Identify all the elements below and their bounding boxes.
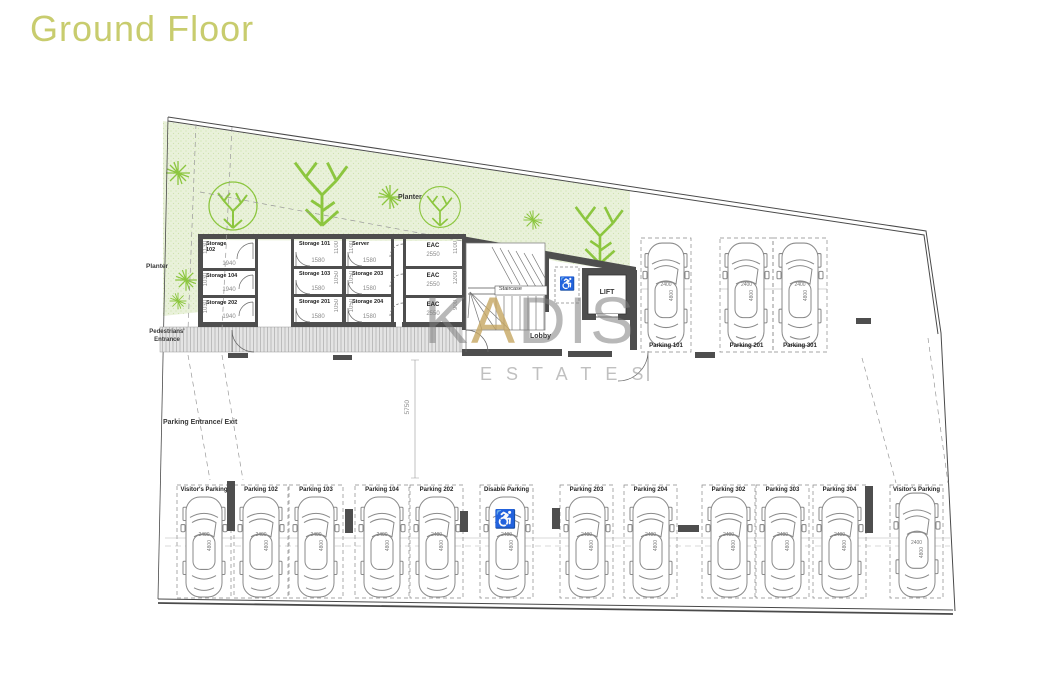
- planter-top-label: Planter: [398, 194, 422, 201]
- stall-label: Disable Parking: [480, 487, 533, 493]
- room-storage-203: Storage 203 1580 1050: [349, 270, 390, 293]
- room-name: EAC: [407, 270, 459, 280]
- stall-width-dim: 2400: [624, 532, 677, 538]
- wheelchair-icon: ♿: [559, 276, 575, 292]
- wheelchair-icon: ♿: [494, 509, 516, 530]
- room-storage-202: Storage 202 1940 1030: [203, 299, 255, 321]
- pedestrian-walkway: [160, 327, 462, 352]
- room-width-dim: 2550: [407, 252, 459, 258]
- stall-length-dim: 4800: [669, 290, 675, 301]
- stall-length-dim: 4800: [731, 540, 737, 551]
- room-storage-102: Storage102 1940 1130: [203, 240, 255, 268]
- room-height-dim: 900: [453, 300, 459, 310]
- parking-stall-201: 2400 4800 Parking 201: [720, 238, 773, 352]
- room-number: 204: [374, 299, 383, 305]
- stall-length-dim: 4800: [785, 540, 791, 551]
- aisle-dimension-label: 5750: [404, 400, 411, 414]
- room-width-dim: 2550: [407, 311, 459, 317]
- stall-width-dim: 2400: [641, 282, 691, 288]
- parking-stall-104: Parking 104 2400 4800: [355, 485, 409, 598]
- room-storage-201: Storage 201 1580 1050: [296, 298, 340, 321]
- room-height-dim: 1100: [349, 241, 355, 254]
- room-name: Storage: [206, 300, 226, 306]
- room-name: Storage: [352, 299, 372, 305]
- parking-entrance-label: Parking Entrance/ Exit: [163, 419, 237, 426]
- room-number: 103: [321, 271, 330, 277]
- parking-stall-204: Parking 204 2400 4800: [624, 485, 677, 598]
- room-number: 203: [374, 271, 383, 277]
- stall-label: Parking 104: [355, 487, 409, 493]
- lift-label: LIFT: [588, 289, 626, 296]
- parking-stall-304: Parking 304 2400 4800: [813, 485, 866, 598]
- stall-length-dim: 4800: [919, 547, 925, 558]
- room-number: 101: [321, 241, 330, 247]
- stall-width-dim: 2400: [702, 532, 755, 538]
- room-height-dim: 1100: [334, 241, 340, 254]
- room-width-dim: 1940: [203, 287, 255, 293]
- room-width-dim: 1580: [296, 286, 340, 292]
- room-height-dim: 1030: [203, 300, 209, 313]
- stall-width-dim: 2400: [480, 532, 533, 538]
- floor-plan-page: KADIS ESTATES Ground Floor Planter Plant…: [0, 0, 1063, 696]
- parking-stall-disabled: Disable Parking 2400 4800 ♿: [480, 485, 533, 598]
- lobby-label: Lobby: [530, 333, 551, 340]
- room-name: EAC: [407, 240, 459, 250]
- stall-width-dim: 2400: [560, 532, 613, 538]
- room-name: Storage: [299, 271, 319, 277]
- parking-stall-101: 2400 4800 Parking 101: [641, 238, 691, 352]
- stall-width-dim: 2400: [410, 532, 463, 538]
- room-name: Storage: [206, 273, 226, 279]
- stall-length-dim: 4800: [803, 290, 809, 301]
- stall-width-dim: 2400: [355, 532, 409, 538]
- stall-label: Parking 102: [234, 487, 288, 493]
- stall-label: Parking 202: [410, 487, 463, 493]
- stall-length-dim: 4800: [264, 540, 270, 551]
- parking-stall-visitor-left: Visitor's Parking 2400 4800: [177, 485, 231, 598]
- room-number: 202: [228, 300, 237, 306]
- stall-length-dim: 4800: [749, 290, 755, 301]
- room-height-dim: 1050: [349, 271, 355, 284]
- stall-label: Parking 201: [720, 343, 773, 349]
- parking-stall-202: Parking 202 2400 4800: [410, 485, 463, 598]
- room-height-dim: 1050: [349, 299, 355, 312]
- parking-stall-102: Parking 102 2400 4800: [234, 485, 288, 598]
- staircase-label: Staircase: [499, 286, 522, 292]
- parking-stall-103: Parking 103 2400 4800: [289, 485, 343, 598]
- room-height-dim: 1050: [334, 271, 340, 284]
- stall-width-dim: 2400: [177, 532, 231, 538]
- stall-label: Parking 203: [560, 487, 613, 493]
- room-storage-104: Storage 104 1940 1030: [203, 272, 255, 294]
- room-server: Server 1580 1100: [349, 240, 390, 265]
- stall-length-dim: 4800: [509, 540, 515, 551]
- room-width-dim: 2550: [407, 282, 459, 288]
- stall-width-dim: 2400: [890, 540, 943, 546]
- room-storage-103: Storage 103 1580 1050: [296, 270, 340, 293]
- stall-width-dim: 2400: [773, 282, 827, 288]
- parking-stall-301: 2400 4800 Parking 301: [773, 238, 827, 352]
- stall-length-dim: 4800: [319, 540, 325, 551]
- room-name: Storage: [299, 241, 319, 247]
- stall-width-dim: 2400: [289, 532, 343, 538]
- room-width-dim: 1580: [349, 258, 390, 264]
- room-height-dim: 1130: [203, 241, 209, 254]
- stall-label: Parking 303: [756, 487, 809, 493]
- room-width-dim: 1940: [203, 314, 255, 320]
- stall-length-dim: 4800: [842, 540, 848, 551]
- room-height-dim: 1200: [453, 271, 459, 284]
- stall-label: Parking 101: [641, 343, 691, 349]
- stall-length-dim: 4800: [589, 540, 595, 551]
- room-height-dim: 1100: [453, 241, 459, 254]
- room-storage-204: Storage 204 1580 1050: [349, 298, 390, 321]
- stall-width-dim: 2400: [234, 532, 288, 538]
- stall-length-dim: 4800: [385, 540, 391, 551]
- stall-label: Parking 304: [813, 487, 866, 493]
- stall-label: Parking 301: [773, 343, 827, 349]
- room-name: Storage: [299, 299, 319, 305]
- stall-label: Parking 204: [624, 487, 677, 493]
- stall-label: Parking 103: [289, 487, 343, 493]
- parking-stall-303: Parking 303 2400 4800: [756, 485, 809, 598]
- room-storage-101: Storage 101 1580 1100: [296, 240, 340, 265]
- stall-length-dim: 4800: [653, 540, 659, 551]
- room-height-dim: 1030: [203, 273, 209, 286]
- room-number: 104: [228, 273, 237, 279]
- room-eac-3: EAC 2550 900: [407, 299, 459, 321]
- stall-width-dim: 2400: [720, 282, 773, 288]
- stall-length-dim: 4800: [207, 540, 213, 551]
- stall-width-dim: 2400: [756, 532, 809, 538]
- room-width-dim: 1940: [203, 261, 255, 267]
- stall-width-dim: 2400: [813, 532, 866, 538]
- room-name: EAC: [407, 299, 459, 309]
- pedestrians-entrance-label: Pedestrians' Entrance: [136, 329, 198, 345]
- stall-label: Parking 302: [702, 487, 755, 493]
- planter-left-label: Planter: [146, 263, 168, 270]
- stall-label: Visitor's Parking: [890, 487, 943, 493]
- aisle-dimension-line: [411, 360, 419, 478]
- room-eac-1: EAC 2550 1100: [407, 240, 459, 265]
- parking-stall-visitor-right: Visitor's Parking 2400 4800: [890, 485, 943, 598]
- room-name: Storage: [352, 271, 372, 277]
- room-width-dim: 1580: [349, 314, 390, 320]
- room-width-dim: 1580: [296, 314, 340, 320]
- room-width-dim: 1580: [296, 258, 340, 264]
- room-width-dim: 1580: [349, 286, 390, 292]
- parking-stall-302: Parking 302 2400 4800: [702, 485, 755, 598]
- room-height-dim: 1050: [334, 299, 340, 312]
- page-title: Ground Floor: [30, 8, 254, 50]
- parking-stall-203: Parking 203 2400 4800: [560, 485, 613, 598]
- room-number: 201: [321, 299, 330, 305]
- stall-label: Visitor's Parking: [177, 487, 231, 493]
- stall-length-dim: 4800: [439, 540, 445, 551]
- room-eac-2: EAC 2550 1200: [407, 270, 459, 294]
